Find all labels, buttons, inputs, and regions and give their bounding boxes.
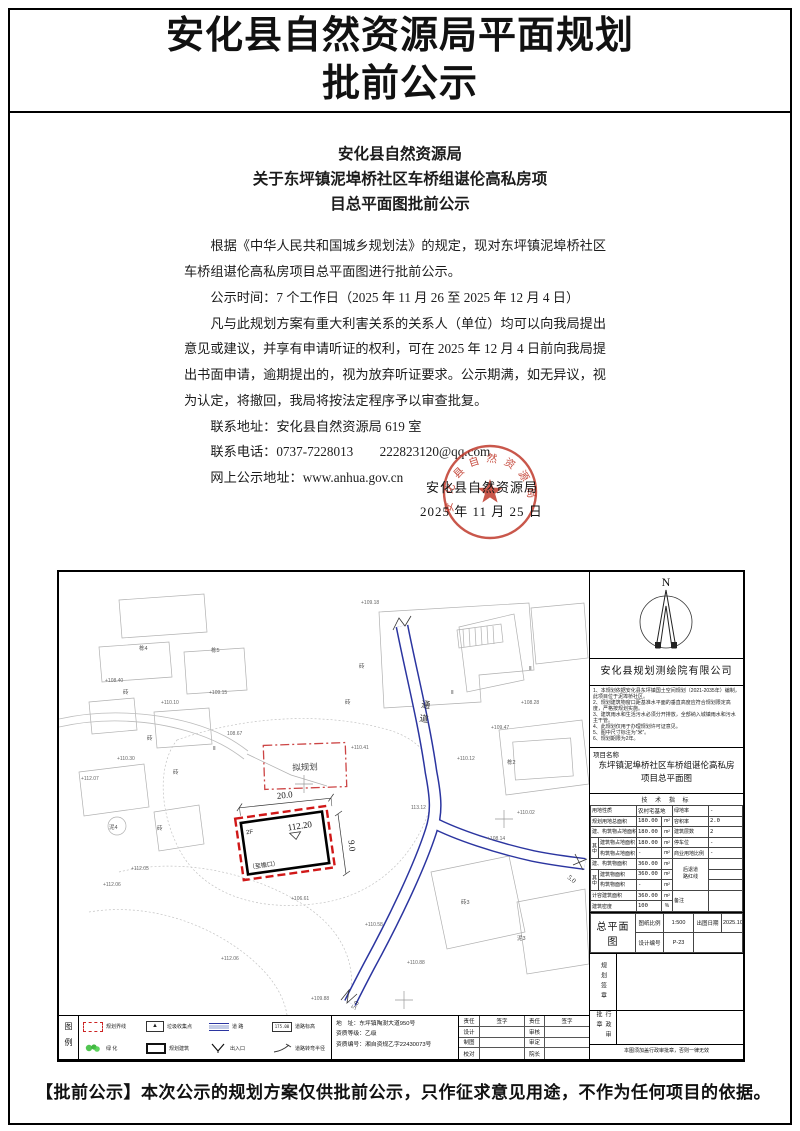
official-seal: 安化县自然资源局 安化县自然资源局 2025 年 11 月 25 日 bbox=[415, 435, 585, 565]
map-annotation: 栋4 bbox=[139, 644, 148, 652]
map-annotation: +112.05 bbox=[131, 866, 149, 872]
map-annotation: 泥4 bbox=[109, 823, 118, 831]
project-name-label: 项目名称 bbox=[590, 749, 743, 759]
page-title-line1: 安化县自然资源局平面规划 bbox=[166, 13, 634, 61]
building-height-dim: 9.0 bbox=[346, 840, 357, 853]
map-annotation: 砖 bbox=[359, 662, 365, 670]
map-annotation: +110.10 bbox=[161, 700, 179, 706]
road-width-label: 5.0 bbox=[566, 873, 578, 885]
signature-table: 责任 签字 责任 签字 设计 审核 制图 审定 校对 院长 bbox=[459, 1016, 589, 1059]
proposed-area: 拟规划 bbox=[263, 743, 346, 790]
map-annotation: +112.06 bbox=[103, 882, 121, 888]
map-annotation: 砖3 bbox=[461, 898, 470, 906]
note-line: 1、本规划依据安化县东坪镇国土空间规划（2021-2035年）编制，此项目位于泥… bbox=[593, 688, 740, 700]
map-annotation: 108.67 bbox=[227, 731, 243, 737]
technical-indicators-table: 技 术 指 标 用地性质 农村宅基地 绿地率 - 规划用地总面积 180.00 … bbox=[590, 794, 743, 912]
date-label: 出图日期 bbox=[694, 913, 722, 933]
stamp-validity-note: 本图须加盖行政审批章，否则一律无效 bbox=[590, 1044, 743, 1059]
road-icon bbox=[209, 1022, 229, 1032]
legend-item-road: 道 路 bbox=[205, 1016, 268, 1038]
notice-paragraph-basis: 根据《中华人民共和国城乡规划法》的规定，现对东坪镇泥埠桥社区车桥组谌伦高私房项目… bbox=[184, 233, 616, 284]
sheet-left-column: 5.0 5.0 通道 拟规划 bbox=[59, 572, 589, 1059]
sign-blank bbox=[544, 1048, 589, 1059]
building-width-dim: 20.0 bbox=[276, 789, 293, 801]
sign-blank bbox=[544, 1027, 589, 1038]
legend-item-trash: ▲ 垃圾收集点 bbox=[142, 1016, 205, 1038]
legend-grid: 规划界线 ▲ 垃圾收集点 道 路 bbox=[79, 1016, 332, 1059]
map-annotation: Ⅱ bbox=[451, 690, 454, 696]
map-annotation: +112.06 bbox=[221, 956, 239, 962]
drawing-notes: 1、本规划依据安化县东坪镇国土空间规划（2021-2035年）编制，此项目位于泥… bbox=[590, 686, 743, 748]
legend-item-turn-radius: 道路转弯半径 bbox=[268, 1038, 331, 1060]
turn-radius-icon bbox=[272, 1043, 292, 1053]
compass-needle-icon bbox=[656, 590, 676, 648]
sign-blank bbox=[479, 1027, 524, 1038]
map-annotation: 砖 bbox=[147, 734, 153, 742]
sign-role-proof: 校对 bbox=[459, 1048, 479, 1059]
legend-item-entrance: 出入口 bbox=[205, 1038, 268, 1060]
map-annotation: Ⅱ bbox=[529, 666, 532, 672]
notice-document: 安化县自然资源局 关于东坪镇泥埠桥社区车桥组谌伦高私房项 目总平面图批前公示 根… bbox=[10, 113, 790, 570]
legend-item-building: 规划建筑 bbox=[142, 1038, 205, 1060]
sign-role-design: 设计 bbox=[459, 1027, 479, 1038]
greening-icon bbox=[83, 1043, 103, 1053]
tech-table-title: 技 术 指 标 bbox=[591, 794, 743, 806]
map-annotation: 113.12 bbox=[411, 805, 426, 811]
legend-item-road-elevation: 175.00 道路标高 bbox=[268, 1016, 331, 1038]
map-annotation: +108.28 bbox=[521, 700, 539, 706]
site-map: 5.0 5.0 通道 拟规划 bbox=[59, 572, 589, 1016]
surveyor-address-block: 地 址：东坪镇陶澍大道950号 资质等级：乙级 资质编号：湘自资规乙字22430… bbox=[332, 1016, 459, 1059]
map-annotation: +110.88 bbox=[407, 960, 425, 966]
road-elevation-icon: 175.00 bbox=[272, 1022, 292, 1032]
map-annotation: +109.88 bbox=[311, 996, 329, 1002]
entrance-icon bbox=[209, 1043, 227, 1053]
map-annotation: 泥3 bbox=[517, 934, 526, 942]
surveyor-company-name: 安化县规划测绘院有限公司 bbox=[590, 659, 743, 686]
technical-indicators: 技 术 指 标 用地性质 农村宅基地 绿地率 - 规划用地总面积 180.00 … bbox=[590, 794, 743, 913]
map-annotation: +109.47 bbox=[491, 725, 509, 731]
map-annotation: +110.41 bbox=[351, 745, 369, 751]
sign-header-role: 责任 bbox=[524, 1016, 544, 1027]
legend-item-green: 绿 化 bbox=[79, 1038, 142, 1060]
admin-approval-stamp-label: 行政审批章 bbox=[590, 1011, 617, 1044]
map-annotation: 砖 bbox=[123, 688, 129, 696]
date-value: 2025.10 bbox=[722, 913, 743, 933]
sign-header-signature: 签字 bbox=[479, 1016, 524, 1027]
page-title-line2: 批前公示 bbox=[322, 61, 478, 109]
map-annotation: 栋5 bbox=[211, 646, 220, 654]
sheet-title: 总平面图 bbox=[591, 913, 636, 952]
map-annotation: +108.14 bbox=[487, 836, 505, 842]
sign-role-director: 院长 bbox=[524, 1048, 544, 1059]
project-name-block: 项目名称 东坪镇泥埠桥社区车桥组谌伦高私房 项目总平面图 bbox=[590, 748, 743, 794]
parcel-linework bbox=[79, 594, 589, 974]
map-annotation: +109.18 bbox=[361, 600, 379, 606]
footer-notice: 【批前公示】本次公示的规划方案仅供批前公示，只作征求意见用途，不作为任何项目的依… bbox=[10, 1062, 790, 1103]
map-annotation: +110.12 bbox=[457, 756, 475, 762]
project-name-line1: 东坪镇泥埠桥社区车桥组谌伦高私房 bbox=[590, 759, 743, 772]
sign-blank bbox=[544, 1038, 589, 1049]
project-name-line2: 项目总平面图 bbox=[590, 772, 743, 785]
planning-stamp-label: 规划签章 bbox=[590, 954, 617, 1010]
sign-role-review: 审核 bbox=[524, 1027, 544, 1038]
notice-heading-line1: 安化县自然资源局 bbox=[10, 143, 790, 168]
sign-blank bbox=[479, 1048, 524, 1059]
scale-label: 图纸比例 bbox=[636, 913, 664, 933]
north-label: N bbox=[662, 575, 671, 589]
map-labels-group: 栋4栋5砖+108.40+110.10+109.15砖108.67+112.07… bbox=[81, 600, 539, 1002]
building-floors-label: 2F bbox=[246, 829, 254, 836]
map-annotation: 砖 bbox=[157, 824, 163, 832]
legend-title: 图例 bbox=[59, 1016, 79, 1059]
legend-item-boundary: 规划界线 bbox=[79, 1016, 142, 1038]
map-annotation: +108.40 bbox=[105, 678, 123, 684]
planned-building: 112.20 2F （至檐口） bbox=[235, 806, 335, 880]
map-annotation: +112.07 bbox=[81, 776, 99, 782]
map-annotation: +110.30 bbox=[117, 756, 135, 762]
notice-heading-line3: 目总平面图批前公示 bbox=[10, 193, 790, 218]
map-annotation: +110.58 bbox=[365, 922, 383, 928]
site-map-svg: 5.0 5.0 通道 拟规划 bbox=[59, 572, 589, 1015]
notice-heading: 安化县自然资源局 关于东坪镇泥埠桥社区车桥组谌伦高私房项 目总平面图批前公示 bbox=[10, 113, 790, 217]
admin-approval-stamp-box: 行政审批章 bbox=[590, 1011, 743, 1044]
surveyor-address: 地 址：东坪镇陶澍大道950号 bbox=[336, 1019, 456, 1029]
map-annotation: 砖 bbox=[173, 768, 179, 776]
page-title: 安化县自然资源局平面规划 批前公示 bbox=[10, 10, 790, 113]
planned-building-icon bbox=[146, 1043, 166, 1054]
sign-header-role: 责任 bbox=[459, 1016, 479, 1027]
map-annotation: +109.15 bbox=[209, 690, 227, 696]
notice-paragraph-period: 公示时间：7 个工作日（2025 年 11 月 26 至 2025 年 12 月… bbox=[184, 285, 616, 311]
design-no-label: 设计编号 bbox=[636, 933, 664, 953]
sign-role-draft: 制图 bbox=[459, 1038, 479, 1049]
sign-header-signature: 签字 bbox=[544, 1016, 589, 1027]
note-line: 3、建筑雨水和生活污水必须分开排放，全部纳入城镇雨水和污水主干管。 bbox=[593, 712, 740, 724]
planning-stamp-box: 规划签章 bbox=[590, 954, 743, 1011]
notice-heading-line2: 关于东坪镇泥埠桥社区车桥组谌伦高私房项 bbox=[10, 168, 790, 193]
page-frame: 安化县自然资源局平面规划 批前公示 安化县自然资源局 关于东坪镇泥埠桥社区车桥组… bbox=[8, 8, 792, 1125]
legend-strip: 图例 规划界线 ▲ 垃圾收集点 bbox=[59, 1016, 589, 1059]
sign-blank bbox=[479, 1038, 524, 1049]
trash-point-icon: ▲ bbox=[146, 1021, 164, 1032]
sheet-info-block: 总平面图 图纸比例 1:500 出图日期 2025.10 设计编号 P-23 bbox=[590, 913, 743, 954]
map-annotation: 砖 bbox=[345, 698, 351, 706]
scale-value: 1:500 bbox=[664, 913, 694, 933]
map-annotation: 栋2 bbox=[507, 758, 516, 766]
minor-road bbox=[59, 713, 248, 759]
seal-org-line: 安化县自然资源局 bbox=[426, 477, 538, 496]
site-plan-sheet: 5.0 5.0 通道 拟规划 bbox=[57, 570, 745, 1062]
design-no-value: P-23 bbox=[664, 933, 694, 953]
map-annotation: +106.61 bbox=[291, 896, 309, 902]
proposed-area-label: 拟规划 bbox=[292, 762, 318, 773]
note-line: 6、规划期限为2年。 bbox=[593, 736, 740, 742]
map-annotation: Ⅱ bbox=[213, 746, 216, 752]
map-annotation: +110.02 bbox=[517, 810, 535, 816]
title-block-panel: N 安化县规划测绘院有限公司 1、本规划依据安化县东坪镇国土空间规划（2021-… bbox=[589, 572, 743, 1059]
sheet-info-table: 总平面图 图纸比例 1:500 出图日期 2025.10 设计编号 P-23 bbox=[590, 913, 743, 953]
road-network bbox=[350, 626, 585, 1003]
north-compass: N bbox=[590, 572, 743, 659]
qualification-number: 资质编号：湘自资规乙字22430073号 bbox=[336, 1040, 456, 1050]
notice-paragraph-rights: 凡与此规划方案有重大利害关系的关系人（单位）均可以向我局提出意见或建议，并享有申… bbox=[184, 311, 616, 414]
seal-date-line: 2025 年 11 月 25 日 bbox=[420, 501, 543, 520]
planning-boundary-icon bbox=[83, 1022, 103, 1032]
sign-role-approve: 审定 bbox=[524, 1038, 544, 1049]
note-line: 2、规划建筑物窗口距基准水平面的垂直高度应符合规划限定高度，严格按规划实施。 bbox=[593, 700, 740, 712]
qualification-grade: 资质等级：乙级 bbox=[336, 1029, 456, 1039]
